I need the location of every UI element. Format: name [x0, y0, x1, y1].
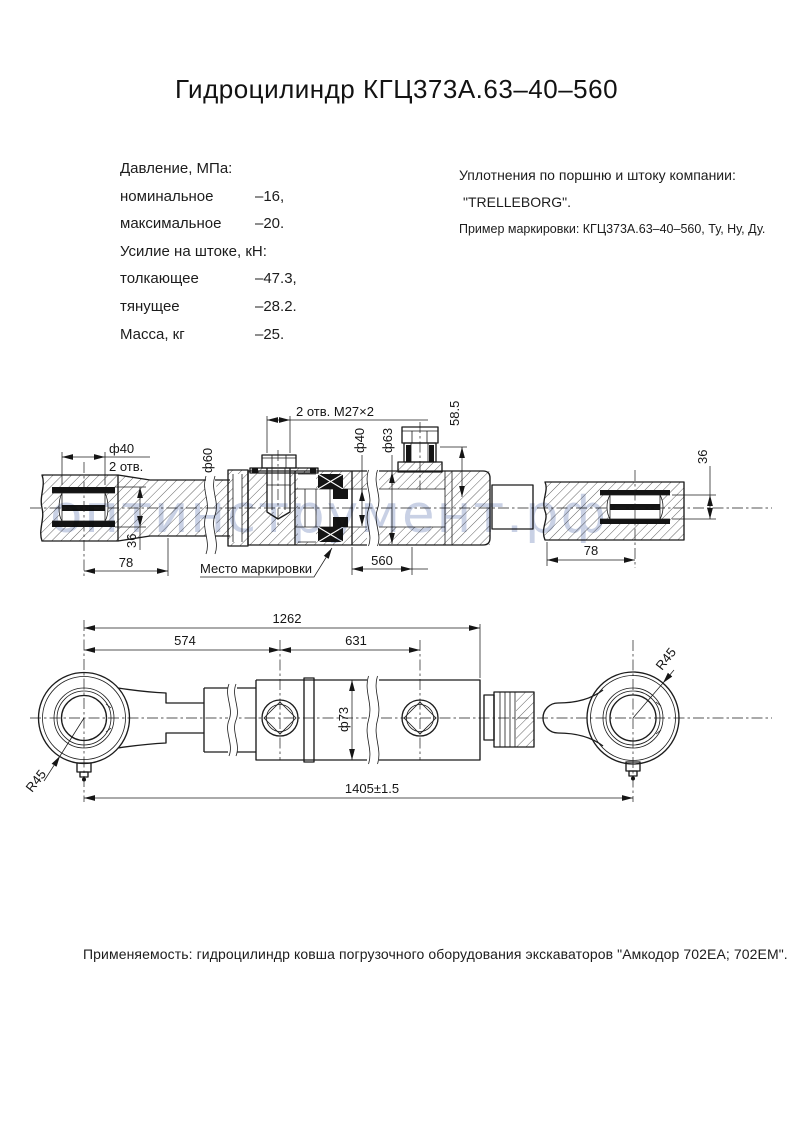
- rod-outline: [118, 684, 256, 756]
- spec-label: номинальное: [120, 188, 255, 216]
- spec-label: Усилие на штоке, кН:: [120, 243, 255, 271]
- outline-view: 1262 574 631 ф73 1405±1.5 R45 R45: [23, 611, 772, 802]
- dim-rod-dia60-label: ф60: [200, 448, 215, 473]
- spec-table: Давление, МПа: номинальное–16, максималь…: [120, 160, 370, 353]
- spec-row: максимальное–20.: [120, 215, 370, 243]
- dim-eye-len-left-label: 78: [119, 555, 133, 570]
- spec-label: толкающее: [120, 270, 255, 298]
- dim-bore-dia63-label: ф63: [380, 428, 395, 453]
- dim-overall-len-label: 1405±1.5: [345, 781, 399, 796]
- dim-eye-radius-left-label: R45: [23, 767, 50, 795]
- watermark: оптинструмент.рф: [50, 484, 608, 545]
- dim-port-height-label: 58.5: [447, 401, 462, 426]
- spec-value: –20.: [255, 215, 284, 243]
- spec-label: максимальное: [120, 215, 255, 243]
- spec-row: Масса, кг–25.: [120, 326, 370, 354]
- seal-note-line1: Уплотнения по поршню и штоку компании:: [459, 162, 759, 189]
- spec-value: –16,: [255, 188, 284, 216]
- seal-note-line2: "TRELLEBORG".: [459, 189, 759, 216]
- application-note: Применяемость: гидроцилиндр ковша погруз…: [83, 946, 788, 962]
- dim-pin-dia-label: ф40: [109, 441, 134, 456]
- dim-bearing-width-right-label: 36: [695, 450, 710, 464]
- spec-row: Давление, МПа:: [120, 160, 370, 188]
- dim-eye-len-right-label: 78: [584, 543, 598, 558]
- outline-centerlines: [30, 620, 772, 802]
- spec-value: –25.: [255, 326, 284, 354]
- outline-dimensions: 1262 574 631 ф73 1405±1.5 R45 R45: [23, 611, 680, 798]
- spec-label: Масса, кг: [120, 326, 255, 354]
- drawing-title: Гидроцилиндр КГЦ373А.63–40–560: [0, 74, 793, 105]
- technical-drawing: ф40 2 отв. 36 ф60 2 отв. М27×2 ф40 ф63: [0, 390, 793, 825]
- spec-label: Давление, МПа:: [120, 160, 255, 188]
- dim-rod-part-label: 574: [174, 633, 196, 648]
- spec-value: –28.2.: [255, 298, 297, 326]
- threaded-coupling-outline: [484, 692, 534, 747]
- dim-barrel-dia-label: ф73: [336, 707, 351, 732]
- dim-eye-radius-right-label: R45: [653, 645, 680, 673]
- seal-note-line3: Пример маркировки: КГЦ373А.63–40–560, Ту…: [459, 216, 759, 243]
- marking-note-label: Место маркировки: [200, 561, 312, 576]
- dim-ports-label: 2 отв. М27×2: [296, 404, 374, 419]
- spec-label: тянущее: [120, 298, 255, 326]
- barrel-outline: [256, 676, 480, 764]
- spec-row: Усилие на штоке, кН:: [120, 243, 370, 271]
- dim-rod-dia40-label: ф40: [352, 428, 367, 453]
- spec-value: –47.3,: [255, 270, 297, 298]
- drawing-sheet: Гидроцилиндр КГЦ373А.63–40–560 Давление,…: [0, 0, 793, 1123]
- dim-stroke-len-label: 560: [371, 553, 393, 568]
- spec-row: номинальное–16,: [120, 188, 370, 216]
- spec-row: толкающее–47.3,: [120, 270, 370, 298]
- dim-pin-holes-label: 2 отв.: [109, 459, 143, 474]
- seal-note: Уплотнения по поршню и штоку компании: "…: [459, 162, 759, 243]
- dim-barrel-part-label: 631: [345, 633, 367, 648]
- dim-total-cyl-label: 1262: [273, 611, 302, 626]
- spec-row: тянущее–28.2.: [120, 298, 370, 326]
